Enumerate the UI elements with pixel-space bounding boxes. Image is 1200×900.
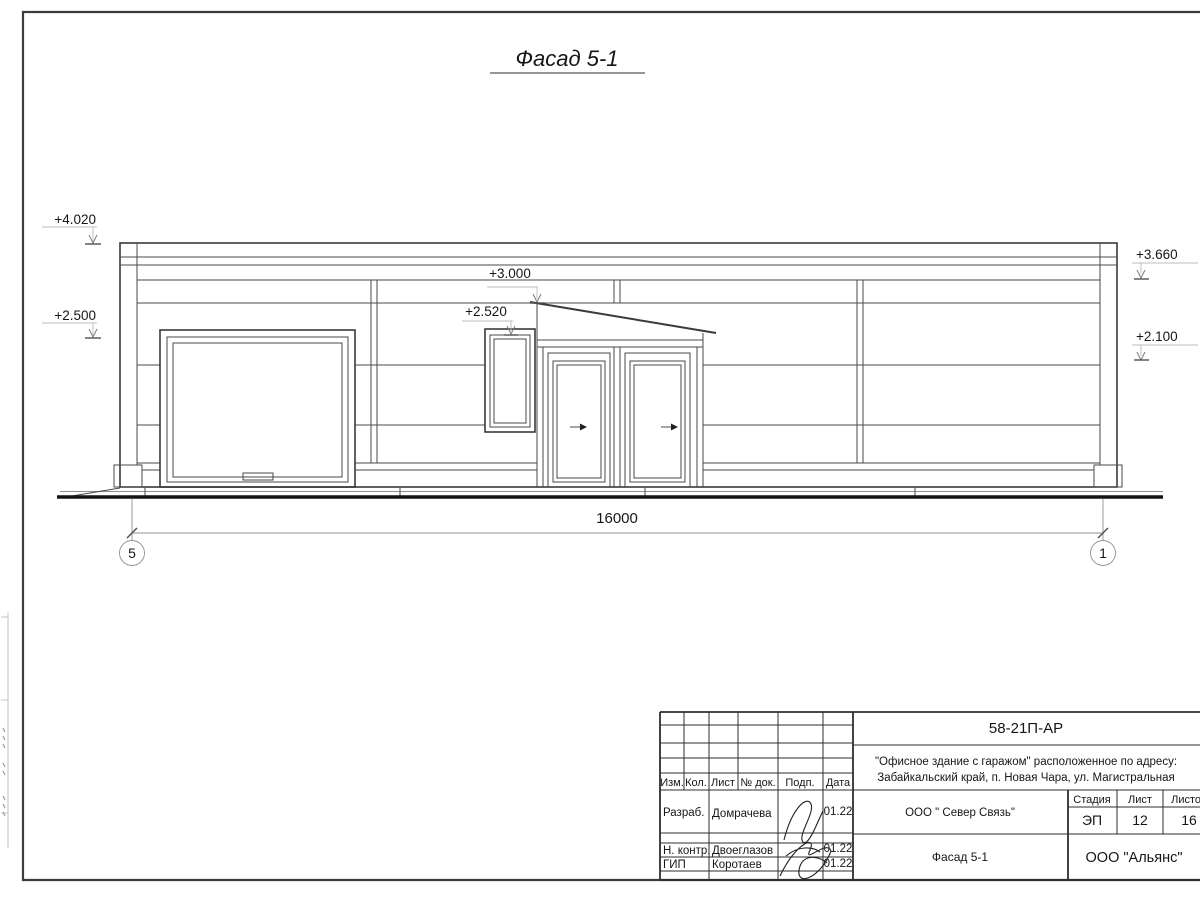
canopy-slope bbox=[530, 302, 716, 333]
date-nkontr: 01.22 bbox=[824, 843, 853, 855]
wall-outline bbox=[120, 243, 1117, 487]
date-razrab: 01.22 bbox=[824, 806, 853, 818]
col-list: Лист bbox=[711, 777, 735, 789]
col-izm: Изм. bbox=[660, 777, 684, 789]
client-company: ООО " Север Связь" bbox=[905, 807, 1015, 819]
elevation-value: +4.020 bbox=[54, 212, 96, 227]
left-margin-strip bbox=[1, 612, 8, 848]
elevation-value: +2.520 bbox=[465, 304, 507, 319]
axis-label: 1 bbox=[1099, 545, 1107, 561]
elevation-mark-canopy: +3.000 bbox=[487, 266, 544, 303]
entrance-door-right bbox=[625, 353, 690, 487]
sheets-label: Листов bbox=[1171, 794, 1200, 806]
door-handle-left bbox=[570, 424, 587, 431]
sheet-label: Лист bbox=[1128, 794, 1152, 806]
project-address-line1: "Офисное здание с гаражом" расположенное… bbox=[875, 756, 1177, 768]
col-kol: Кол. bbox=[685, 777, 707, 789]
stage-value: ЭП bbox=[1082, 812, 1102, 828]
col-podp: Подп. bbox=[785, 777, 814, 789]
sheet-frame bbox=[23, 12, 1200, 880]
page-title: Фасад 5-1 bbox=[515, 46, 618, 71]
garage-door bbox=[160, 330, 355, 487]
axis-label: 5 bbox=[128, 545, 136, 561]
doc-number: 58-21П-АР bbox=[989, 720, 1063, 737]
role-nkontr: Н. контр. bbox=[663, 845, 710, 857]
elevation-value: +3.000 bbox=[489, 266, 531, 281]
drawing-title: Фасад 5-1 bbox=[490, 46, 645, 73]
title-block-column-headers: Изм. Кол. Лист № док. Подп. Дата bbox=[660, 777, 851, 789]
elevation-mark-window-head: +2.520 bbox=[462, 304, 518, 335]
elevation-mark-level-right: +2.100 bbox=[1132, 329, 1198, 360]
drawing-sheet: Фасад 5-1 bbox=[0, 0, 1200, 900]
wall-panel-joints bbox=[371, 280, 863, 463]
door-handle-right bbox=[661, 424, 678, 431]
elevation-mark-parapet-right: +3.660 bbox=[1132, 247, 1198, 279]
sheet-number: 12 bbox=[1132, 812, 1148, 828]
window bbox=[485, 329, 535, 432]
role-gip: ГИП bbox=[663, 859, 686, 871]
entrance-porch bbox=[530, 302, 716, 487]
elevation-mark-parapet-left: +4.020 bbox=[42, 212, 101, 244]
signature-razrab bbox=[784, 801, 823, 842]
role-razrab: Разраб. bbox=[663, 807, 704, 819]
project-address-line2: Забайкальский край, п. Новая Чара, ул. М… bbox=[877, 772, 1175, 784]
col-doc: № док. bbox=[740, 777, 775, 789]
dimension-value: 16000 bbox=[596, 510, 638, 527]
title-block: Изм. Кол. Лист № док. Подп. Дата Разраб.… bbox=[660, 712, 1200, 880]
name-nkontr: Двоеглазов bbox=[712, 845, 773, 857]
ground-line bbox=[57, 487, 1163, 497]
elevation-value: +3.660 bbox=[1136, 247, 1178, 262]
axis-bubble-1: 1 bbox=[1091, 541, 1116, 566]
sheets-total: 16 bbox=[1181, 812, 1197, 828]
dimension-line: 16000 bbox=[127, 499, 1108, 541]
sheet-drawing-name: Фасад 5-1 bbox=[932, 850, 988, 864]
name-gip: Коротаев bbox=[712, 859, 762, 871]
name-razrab: Домрачева bbox=[712, 808, 772, 820]
entrance-door-left bbox=[548, 353, 610, 487]
date-gip: 01.22 bbox=[824, 858, 853, 870]
elevation-value: +2.500 bbox=[54, 308, 96, 323]
design-org: ООО "Альянс" bbox=[1086, 850, 1183, 866]
axis-bubble-5: 5 bbox=[120, 541, 145, 566]
elevation-mark-level-left: +2.500 bbox=[42, 308, 101, 338]
facade-drawing: +4.020 +2.500 +3.000 +2.520 bbox=[42, 212, 1198, 566]
elevation-value: +2.100 bbox=[1136, 329, 1178, 344]
col-data: Дата bbox=[826, 777, 851, 789]
title-block-staff-rows: Разраб. Домрачева 01.22 Н. контр. Двоегл… bbox=[663, 801, 852, 878]
stage-label: Стадия bbox=[1073, 794, 1111, 806]
